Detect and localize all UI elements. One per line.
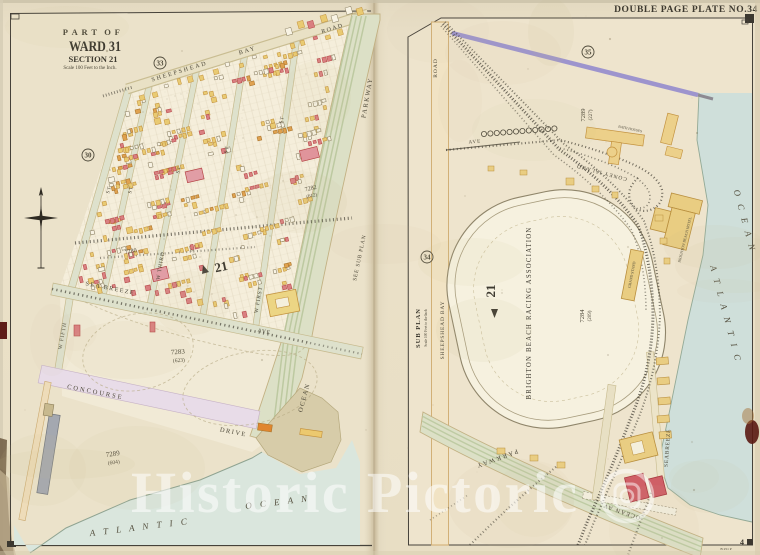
- svg-text:30: 30: [85, 151, 93, 159]
- svg-text:Scale 100 Feet to the Inch: Scale 100 Feet to the Inch: [424, 309, 428, 347]
- svg-text:SUB PLAN: SUB PLAN: [415, 308, 422, 348]
- svg-text:DOUBLE PAGE PLATE NO.34: DOUBLE PAGE PLATE NO.34: [614, 5, 758, 15]
- svg-text:Scale 100 Feet to the Inch.: Scale 100 Feet to the Inch.: [63, 66, 116, 71]
- svg-text:33: 33: [157, 59, 165, 67]
- svg-text:4: 4: [740, 538, 744, 547]
- svg-text:Historic Pictoric: Historic Pictoric: [131, 460, 577, 525]
- svg-text:(209): (209): [588, 310, 593, 321]
- svg-text:35: 35: [585, 48, 593, 56]
- svg-text:7284: 7284: [579, 309, 586, 323]
- svg-text:21: 21: [483, 285, 498, 298]
- svg-text:SECTION 21: SECTION 21: [69, 54, 118, 64]
- svg-text:BRIGHTON BEACH RACING ASSOCIAT: BRIGHTON BEACH RACING ASSOCIATION: [526, 227, 533, 400]
- svg-text:B 251 P: B 251 P: [720, 547, 731, 551]
